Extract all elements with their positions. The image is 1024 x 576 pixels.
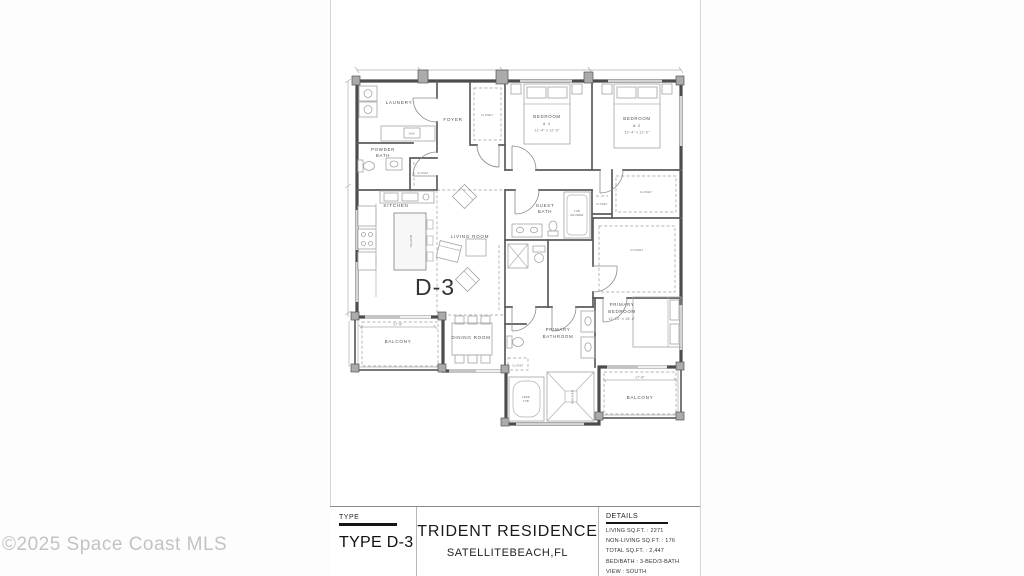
floor-plan: LAUNDRY FOYER POWDER BATH KITCHEN ISLAND… xyxy=(0,0,1024,576)
label-dining-room: DINING ROOM xyxy=(451,335,490,340)
label-closet-walkin: CLOSET xyxy=(631,248,644,252)
label-island: ISLAND xyxy=(409,234,413,247)
label-free-tub-1: FREE xyxy=(522,395,530,399)
details-label: DETAILS xyxy=(606,513,700,520)
label-closet-foyer: CLOSET xyxy=(481,113,493,117)
label-powder: POWDER xyxy=(371,147,395,152)
label-balcony-left-dim: 17'-8" xyxy=(393,323,403,327)
label-bedroom2-num: # 2 xyxy=(633,123,641,128)
detail-total-sqft: TOTAL SQ.FT. : 2,447 xyxy=(606,548,700,554)
label-closet-bedroom2: CLOSET xyxy=(640,190,652,194)
detail-view: VIEW : SOUTH xyxy=(606,569,700,575)
label-closet-linen: CLOSET xyxy=(512,365,524,368)
label-powder-bath: BATH xyxy=(376,153,390,158)
label-primary-bath-1: PRIMARY xyxy=(546,327,571,332)
label-living-room: LIVING ROOM xyxy=(451,234,489,239)
details-underline xyxy=(606,522,668,525)
label-sink: SINK xyxy=(409,133,416,136)
mls-watermark: ©2025 Space Coast MLS xyxy=(2,534,227,556)
mls-floorplan-photo: { "watermark": "©2025 Space Coast MLS", … xyxy=(0,0,1024,576)
detail-nonliving-sqft: NON-LIVING SQ.FT. : 176 xyxy=(606,538,700,544)
label-foyer: FOYER xyxy=(443,117,462,122)
type-value: TYPE D-3 xyxy=(339,534,416,552)
label-closet-powder: CLOSET xyxy=(417,172,429,175)
label-laundry: LAUNDRY xyxy=(386,100,413,105)
type-label: TYPE xyxy=(339,514,416,521)
label-primary-bath-2: BATHROOM xyxy=(543,334,574,339)
label-kitchen: KITCHEN xyxy=(383,203,408,208)
title-block-name-cell: TRIDENT RESIDENCE SATELLITEBEACH,FL xyxy=(416,507,599,576)
unit-label: D-3 xyxy=(415,274,455,300)
label-closet-hall: CLOSET xyxy=(596,203,608,206)
label-balcony-right: BALCONY xyxy=(627,395,654,400)
label-guest: GUEST xyxy=(536,203,555,208)
label-bedroom2-dim: 12'-4" x 12'-0" xyxy=(624,131,650,135)
label-shower: SHOWER xyxy=(571,390,575,404)
label-tub-shower: SHOWER xyxy=(570,213,583,217)
label-bedroom1: BEDROOM xyxy=(533,114,561,119)
residence-location: SATELLITEBEACH,FL xyxy=(417,547,598,559)
title-block: TYPE TYPE D-3 TRIDENT RESIDENCE SATELLIT… xyxy=(330,506,700,576)
label-bedroom1-num: # 1 xyxy=(543,121,551,126)
label-primary-bed-dim: 11'-10" x 16'-6" xyxy=(608,317,636,321)
label-guest-bath: BATH xyxy=(538,209,552,214)
title-block-details-cell: DETAILS LIVING SQ.FT. : 2271 NON-LIVING … xyxy=(599,507,700,576)
label-bedroom2: BEDROOM xyxy=(623,116,651,121)
label-balcony-right-dim: 17'-8" xyxy=(635,376,645,380)
type-underline xyxy=(339,523,397,526)
label-primary-bed-1: PRIMARY xyxy=(610,302,635,307)
label-balcony-left: BALCONY xyxy=(385,339,412,344)
residence-name: TRIDENT RESIDENCE xyxy=(417,523,598,541)
label-free-tub-2: TUB xyxy=(523,399,529,403)
label-tub: TUB xyxy=(574,209,580,213)
label-primary-bed-2: BEDROOM xyxy=(608,309,636,314)
title-block-type-cell: TYPE TYPE D-3 xyxy=(330,507,416,576)
detail-bed-bath: BED/BATH : 3-BED/3-BATH xyxy=(606,559,700,565)
label-bedroom1-dim: 12'-4" x 12'-0" xyxy=(534,129,560,133)
detail-living-sqft: LIVING SQ.FT. : 2271 xyxy=(606,528,700,534)
